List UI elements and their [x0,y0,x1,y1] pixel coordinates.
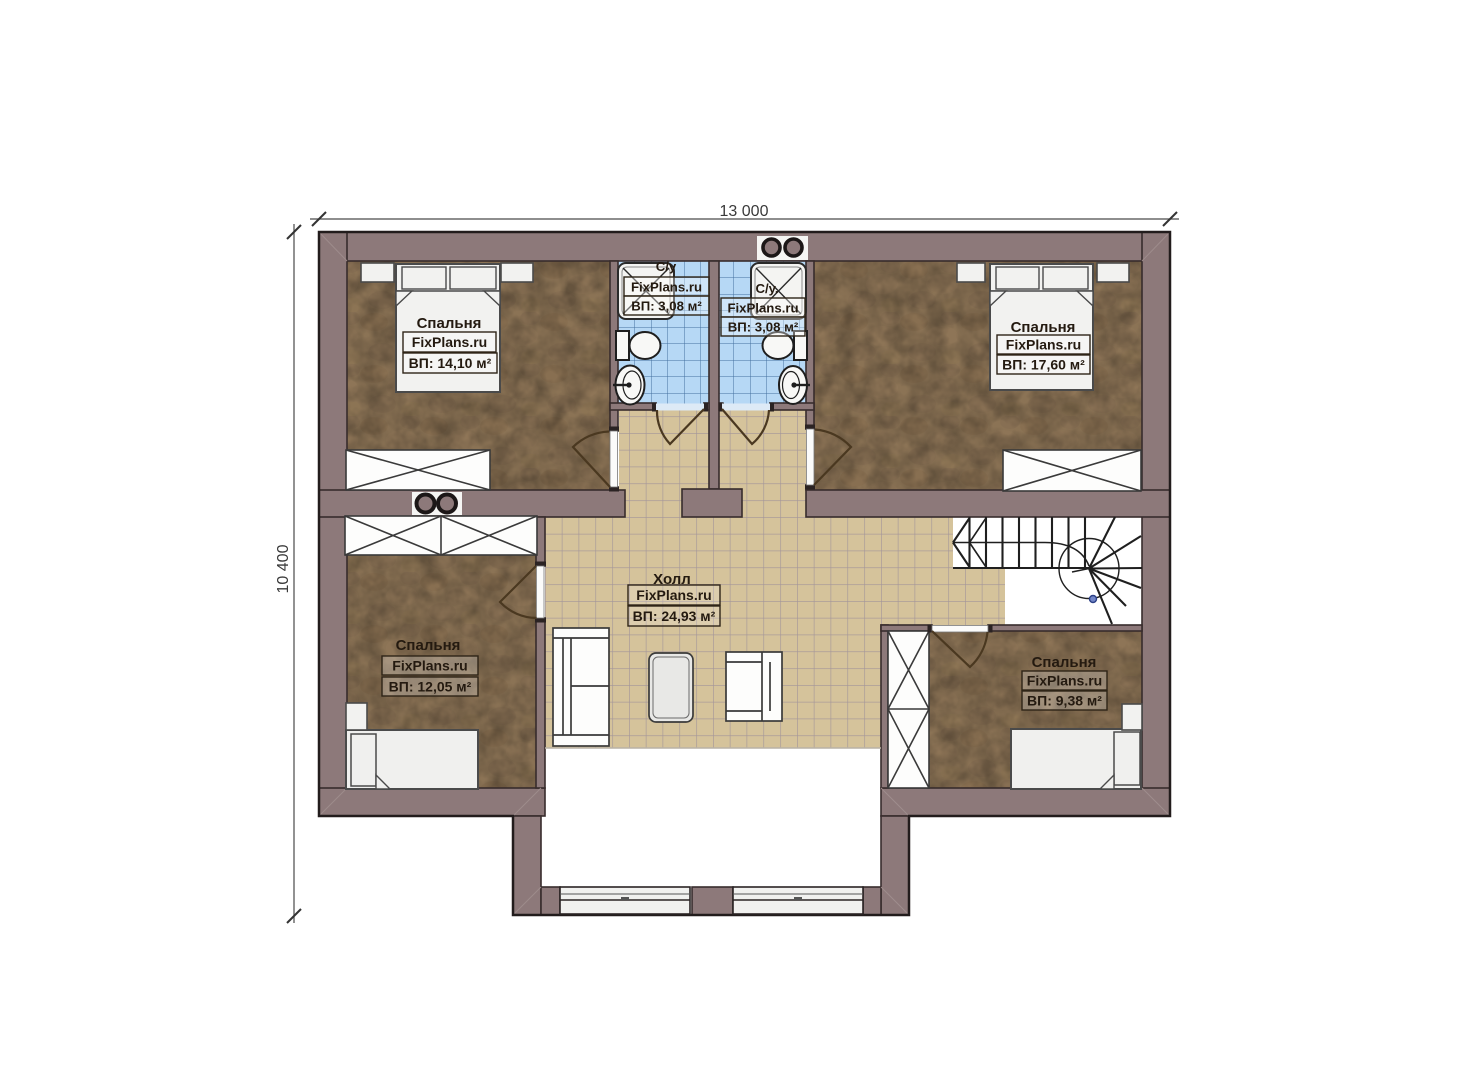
svg-text:FixPlans.ru: FixPlans.ru [1027,673,1102,689]
svg-text:ВП: 3,08 м²: ВП: 3,08 м² [728,320,799,335]
svg-text:FixPlans.ru: FixPlans.ru [1006,337,1081,353]
svg-text:Спальня: Спальня [417,315,482,332]
svg-text:FixPlans.ru: FixPlans.ru [727,301,798,316]
svg-text:С/у.: С/у. [755,281,778,296]
svg-text:ВП: 17,60 м²: ВП: 17,60 м² [1002,357,1085,373]
svg-text:ВП: 14,10 м²: ВП: 14,10 м² [409,355,492,371]
svg-text:13 000: 13 000 [720,203,769,220]
svg-text:FixPlans.ru: FixPlans.ru [412,334,487,350]
svg-text:С/у: С/у [656,259,677,274]
svg-text:Спальня: Спальня [1011,319,1076,336]
svg-text:Спальня: Спальня [396,637,461,654]
svg-text:ВП: 9,38 м²: ВП: 9,38 м² [1027,693,1102,709]
svg-text:10 400: 10 400 [275,544,292,593]
svg-text:ВП: 12,05 м²: ВП: 12,05 м² [389,679,472,695]
svg-text:FixPlans.ru: FixPlans.ru [631,280,702,295]
svg-text:FixPlans.ru: FixPlans.ru [392,658,467,674]
svg-text:ВП: 3,08 м²: ВП: 3,08 м² [631,299,702,314]
svg-text:FixPlans.ru: FixPlans.ru [636,587,711,603]
svg-text:Спальня: Спальня [1032,654,1097,671]
svg-text:ВП: 24,93 м²: ВП: 24,93 м² [633,608,716,624]
